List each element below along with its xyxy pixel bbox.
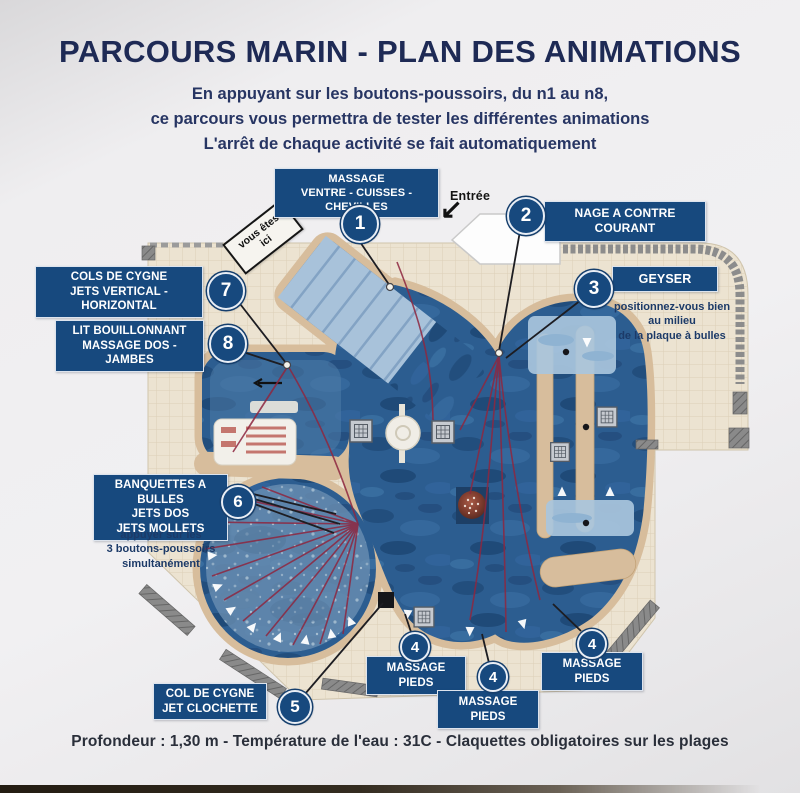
station-3-label: GEYSER [612, 266, 718, 292]
station-5-label: COL DE CYGNE JET CLOCHETTE [153, 683, 267, 720]
station-8-circle: 8 [209, 325, 247, 363]
subtitle-line-1: En appuyant sur les boutons-poussoirs, d… [0, 82, 800, 107]
subtitle-line-2: ce parcours vous permettra de tester les… [0, 107, 800, 132]
station-8-label: LIT BOUILLONNANT MASSAGE DOS - JAMBES [55, 320, 204, 372]
subtitle-line-3: L'arrêt de chaque activité se fait autom… [0, 132, 800, 157]
station-6-note: appuyer sur les 3 boutons-poussoirs simu… [92, 528, 230, 571]
station-4-circle-right: 4 [577, 629, 607, 659]
station-5-circle: 5 [278, 690, 312, 724]
station-4-label-center: MASSAGE PIEDS [437, 690, 539, 729]
station-1-circle: 1 [341, 205, 379, 243]
station-4-circle-center: 4 [478, 662, 508, 692]
station-3-circle: 3 [575, 270, 613, 308]
footer-info: Profondeur : 1,30 m - Température de l'e… [0, 733, 800, 751]
station-3-note: positionnez-vous bien au milieu de la pl… [593, 300, 751, 343]
station-6-circle: 6 [221, 485, 255, 519]
entrance-arrow-icon: ↙ [440, 196, 463, 223]
page-title: PARCOURS MARIN - PLAN DES ANIMATIONS [0, 34, 800, 70]
sign-photo: PARCOURS MARIN - PLAN DES ANIMATIONS En … [0, 0, 800, 793]
station-2-label: NAGE A CONTRE COURANT [544, 201, 706, 242]
station-2-circle: 2 [507, 197, 545, 235]
you-are-here-line-2: ici [258, 233, 274, 249]
photo-ground-strip [0, 785, 800, 793]
station-7-label: COLS DE CYGNE JETS VERTICAL - HORIZONTAL [35, 266, 203, 318]
station-4-circle-left: 4 [400, 632, 430, 662]
station-7-circle: 7 [207, 272, 245, 310]
subtitle: En appuyant sur les boutons-poussoirs, d… [0, 82, 800, 157]
bubble-bed-area [210, 360, 341, 465]
